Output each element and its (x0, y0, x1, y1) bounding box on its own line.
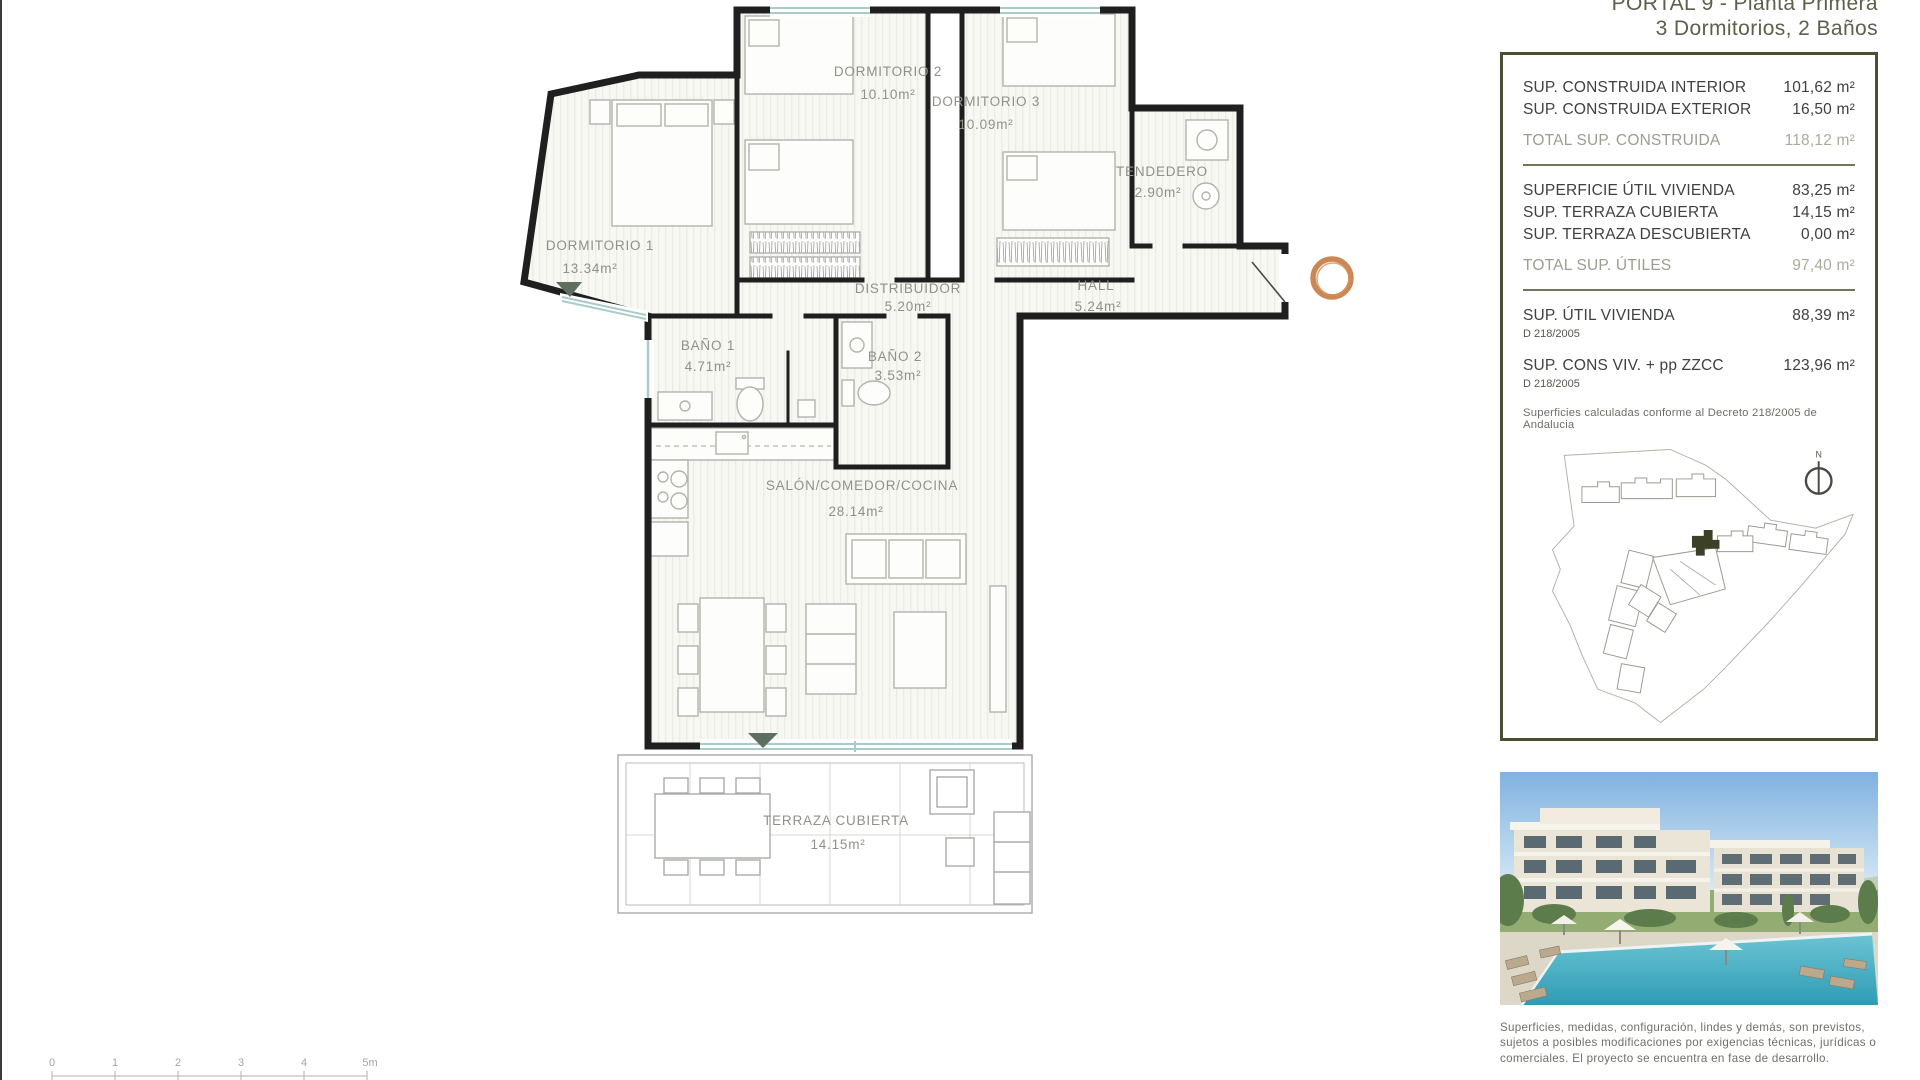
scale-bar: 0 1 2 3 4 5m (49, 1057, 378, 1080)
svg-text:3.53m²: 3.53m² (875, 368, 922, 383)
svg-text:DORMITORIO 3: DORMITORIO 3 (932, 94, 1040, 109)
floorplan-sheet: DORMITORIO 2 10.10m² DORMITORIO 3 10.09m… (0, 0, 1920, 1080)
svg-text:4: 4 (301, 1057, 307, 1069)
row-value: 0,00 m² (1801, 224, 1855, 246)
row-value: 88,39 m² (1792, 305, 1855, 327)
svg-text:TERRAZA CUBIERTA: TERRAZA CUBIERTA (763, 813, 909, 828)
legal-disclaimer: Superficies, medidas, configuración, lin… (1500, 1020, 1882, 1066)
svg-text:14.15m²: 14.15m² (810, 837, 865, 852)
row-label: SUP. TERRAZA DESCUBIERTA (1523, 224, 1751, 246)
row-label: SUPERFICIE ÚTIL VIVIENDA (1523, 180, 1735, 202)
svg-text:5.24m²: 5.24m² (1075, 299, 1122, 314)
row-sup-util-vivienda-decreto: SUP. ÚTIL VIVIENDA 88,39 m² D 218/2005 (1523, 305, 1855, 341)
svg-text:DORMITORIO 1: DORMITORIO 1 (546, 238, 654, 253)
row-sup-terraza-descubierta: SUP. TERRAZA DESCUBIERTA 0,00 m² (1523, 224, 1855, 246)
decreto-reference: D 218/2005 (1523, 378, 1855, 391)
row-label: SUP. ÚTIL VIVIENDA (1523, 305, 1675, 327)
row-sup-terraza-cubierta: SUP. TERRAZA CUBIERTA 14,15 m² (1523, 202, 1855, 224)
svg-text:2: 2 (175, 1057, 181, 1069)
row-label: TOTAL SUP. CONSTRUIDA (1523, 130, 1720, 152)
row-sup-cons-viv-zzcc: SUP. CONS VIV. + pp ZZCC 123,96 m² D 218… (1523, 355, 1855, 391)
svg-text:BAÑO 2: BAÑO 2 (868, 349, 922, 364)
row-value: 14,15 m² (1792, 202, 1855, 224)
row-superficie-util-vivienda: SUPERFICIE ÚTIL VIVIENDA 83,25 m² (1523, 180, 1855, 202)
row-value: 16,50 m² (1792, 99, 1855, 121)
svg-text:10.10m²: 10.10m² (860, 87, 915, 102)
svg-text:BAÑO 1: BAÑO 1 (681, 338, 735, 353)
row-label: SUP. CONSTRUIDA INTERIOR (1523, 77, 1746, 99)
panel-divider (1523, 289, 1855, 291)
svg-text:HALL: HALL (1078, 278, 1115, 293)
terrace (618, 755, 1032, 913)
svg-text:0: 0 (49, 1057, 55, 1069)
room-label-terraza: TERRAZA CUBIERTA 14.15m² (763, 813, 909, 852)
row-total-construida: TOTAL SUP. CONSTRUIDA 118,12 m² (1523, 130, 1855, 152)
property-photo (1500, 772, 1878, 1005)
highlight-ring-annotation (1313, 259, 1351, 297)
svg-text:5m: 5m (362, 1057, 377, 1069)
row-sup-construida-exterior: SUP. CONSTRUIDA EXTERIOR 16,50 m² (1523, 99, 1855, 121)
row-label: SUP. CONS VIV. + pp ZZCC (1523, 355, 1724, 377)
row-total-utiles: TOTAL SUP. ÚTILES 97,40 m² (1523, 255, 1855, 277)
north-indicator-icon: N (1806, 449, 1832, 493)
site-plan: N (1523, 441, 1855, 738)
row-label: SUP. CONSTRUIDA EXTERIOR (1523, 99, 1751, 121)
floor-plan: DORMITORIO 2 10.10m² DORMITORIO 3 10.09m… (0, 0, 1500, 1080)
page-title: PORTAL 9 - Planta Primera 3 Dormitorios,… (1612, 0, 1878, 41)
row-value: 101,62 m² (1783, 77, 1855, 99)
row-label: SUP. TERRAZA CUBIERTA (1523, 202, 1718, 224)
svg-text:DORMITORIO 2: DORMITORIO 2 (834, 64, 942, 79)
svg-text:N: N (1815, 449, 1821, 459)
svg-text:DISTRIBUIDOR: DISTRIBUIDOR (855, 281, 961, 296)
svg-text:10.09m²: 10.09m² (958, 117, 1013, 132)
svg-text:1: 1 (112, 1057, 118, 1069)
svg-text:TENDEDERO: TENDEDERO (1116, 164, 1208, 179)
svg-text:4.71m²: 4.71m² (685, 359, 732, 374)
panel-divider (1523, 164, 1855, 166)
svg-text:2.90m²: 2.90m² (1135, 185, 1182, 200)
row-sup-construida-interior: SUP. CONSTRUIDA INTERIOR 101,62 m² (1523, 77, 1855, 99)
svg-text:13.34m²: 13.34m² (562, 261, 617, 276)
surface-summary-panel: SUP. CONSTRUIDA INTERIOR 101,62 m² SUP. … (1500, 52, 1878, 741)
svg-text:3: 3 (238, 1057, 244, 1069)
svg-text:SALÓN/COMEDOR/COCINA: SALÓN/COMEDOR/COCINA (766, 478, 958, 493)
row-value: 118,12 m² (1785, 130, 1855, 152)
decreto-reference: D 218/2005 (1523, 328, 1855, 341)
row-value: 123,96 m² (1783, 355, 1855, 377)
site-buildings (1582, 474, 1829, 693)
page-title-line1: PORTAL 9 - Planta Primera (1612, 0, 1878, 16)
row-value: 83,25 m² (1792, 180, 1855, 202)
row-value: 97,40 m² (1792, 255, 1855, 277)
decreto-note: Superficies calculadas conforme al Decre… (1523, 407, 1855, 431)
svg-text:5.20m²: 5.20m² (885, 299, 932, 314)
page-title-line2: 3 Dormitorios, 2 Baños (1612, 16, 1878, 41)
row-label: TOTAL SUP. ÚTILES (1523, 255, 1671, 277)
svg-text:28.14m²: 28.14m² (828, 504, 883, 519)
